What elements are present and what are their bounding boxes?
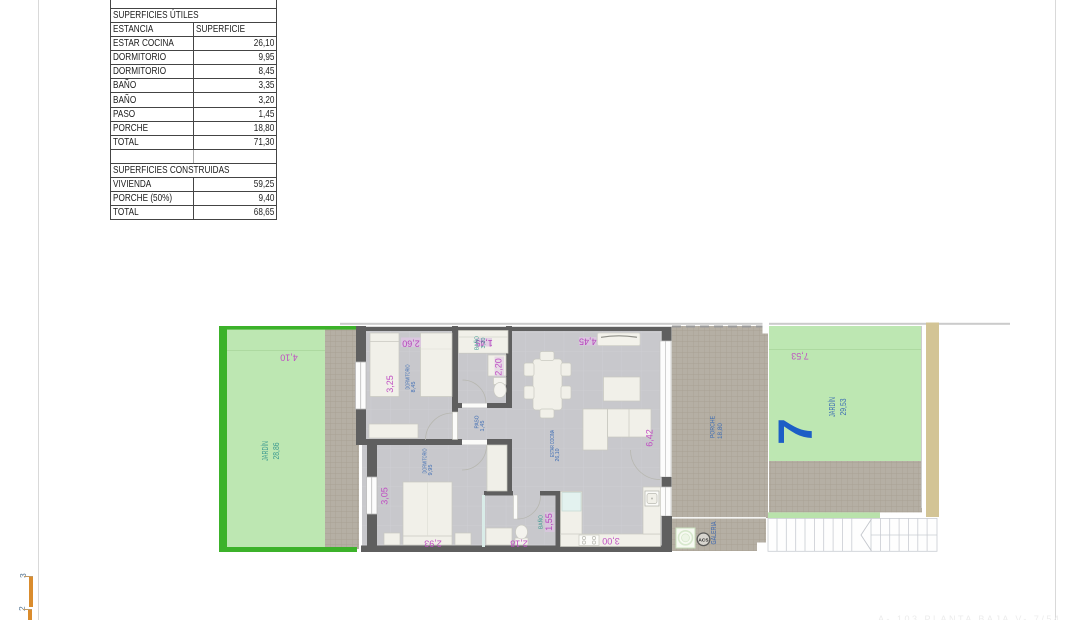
svg-text:7: 7 bbox=[770, 418, 823, 445]
svg-text:8,45: 8,45 bbox=[411, 381, 417, 392]
svg-text:18,80: 18,80 bbox=[717, 423, 724, 439]
svg-text:PORCHE: PORCHE bbox=[710, 415, 717, 438]
svg-text:7,53: 7,53 bbox=[791, 351, 809, 361]
svg-text:4,45: 4,45 bbox=[579, 337, 597, 347]
svg-text:2,20: 2,20 bbox=[493, 358, 503, 376]
svg-text:JARDÍN: JARDÍN bbox=[828, 397, 837, 417]
svg-text:2,60: 2,60 bbox=[402, 338, 420, 348]
svg-text:4,10: 4,10 bbox=[280, 353, 298, 363]
svg-text:3,25: 3,25 bbox=[385, 375, 395, 393]
svg-text:3,05: 3,05 bbox=[379, 487, 389, 505]
svg-text:BAÑO: BAÑO bbox=[538, 515, 545, 529]
svg-text:2,93: 2,93 bbox=[424, 539, 442, 549]
svg-text:BAÑO: BAÑO bbox=[474, 336, 481, 350]
svg-text:2,18: 2,18 bbox=[510, 539, 528, 549]
svg-text:3,20: 3,20 bbox=[481, 337, 487, 348]
svg-text:29,53: 29,53 bbox=[839, 398, 848, 415]
svg-text:JARDÍN: JARDÍN bbox=[261, 441, 270, 461]
svg-text:GALERIA: GALERIA bbox=[711, 521, 718, 544]
svg-text:26,10: 26,10 bbox=[555, 448, 561, 461]
svg-text:1,45: 1,45 bbox=[480, 420, 486, 431]
svg-text:ACS: ACS bbox=[698, 537, 709, 543]
svg-text:28,86: 28,86 bbox=[272, 442, 281, 459]
svg-text:9,95: 9,95 bbox=[428, 464, 434, 475]
svg-text:6,42: 6,42 bbox=[644, 429, 654, 447]
svg-text:1,55: 1,55 bbox=[544, 513, 554, 531]
svg-text:3,00: 3,00 bbox=[602, 536, 620, 546]
